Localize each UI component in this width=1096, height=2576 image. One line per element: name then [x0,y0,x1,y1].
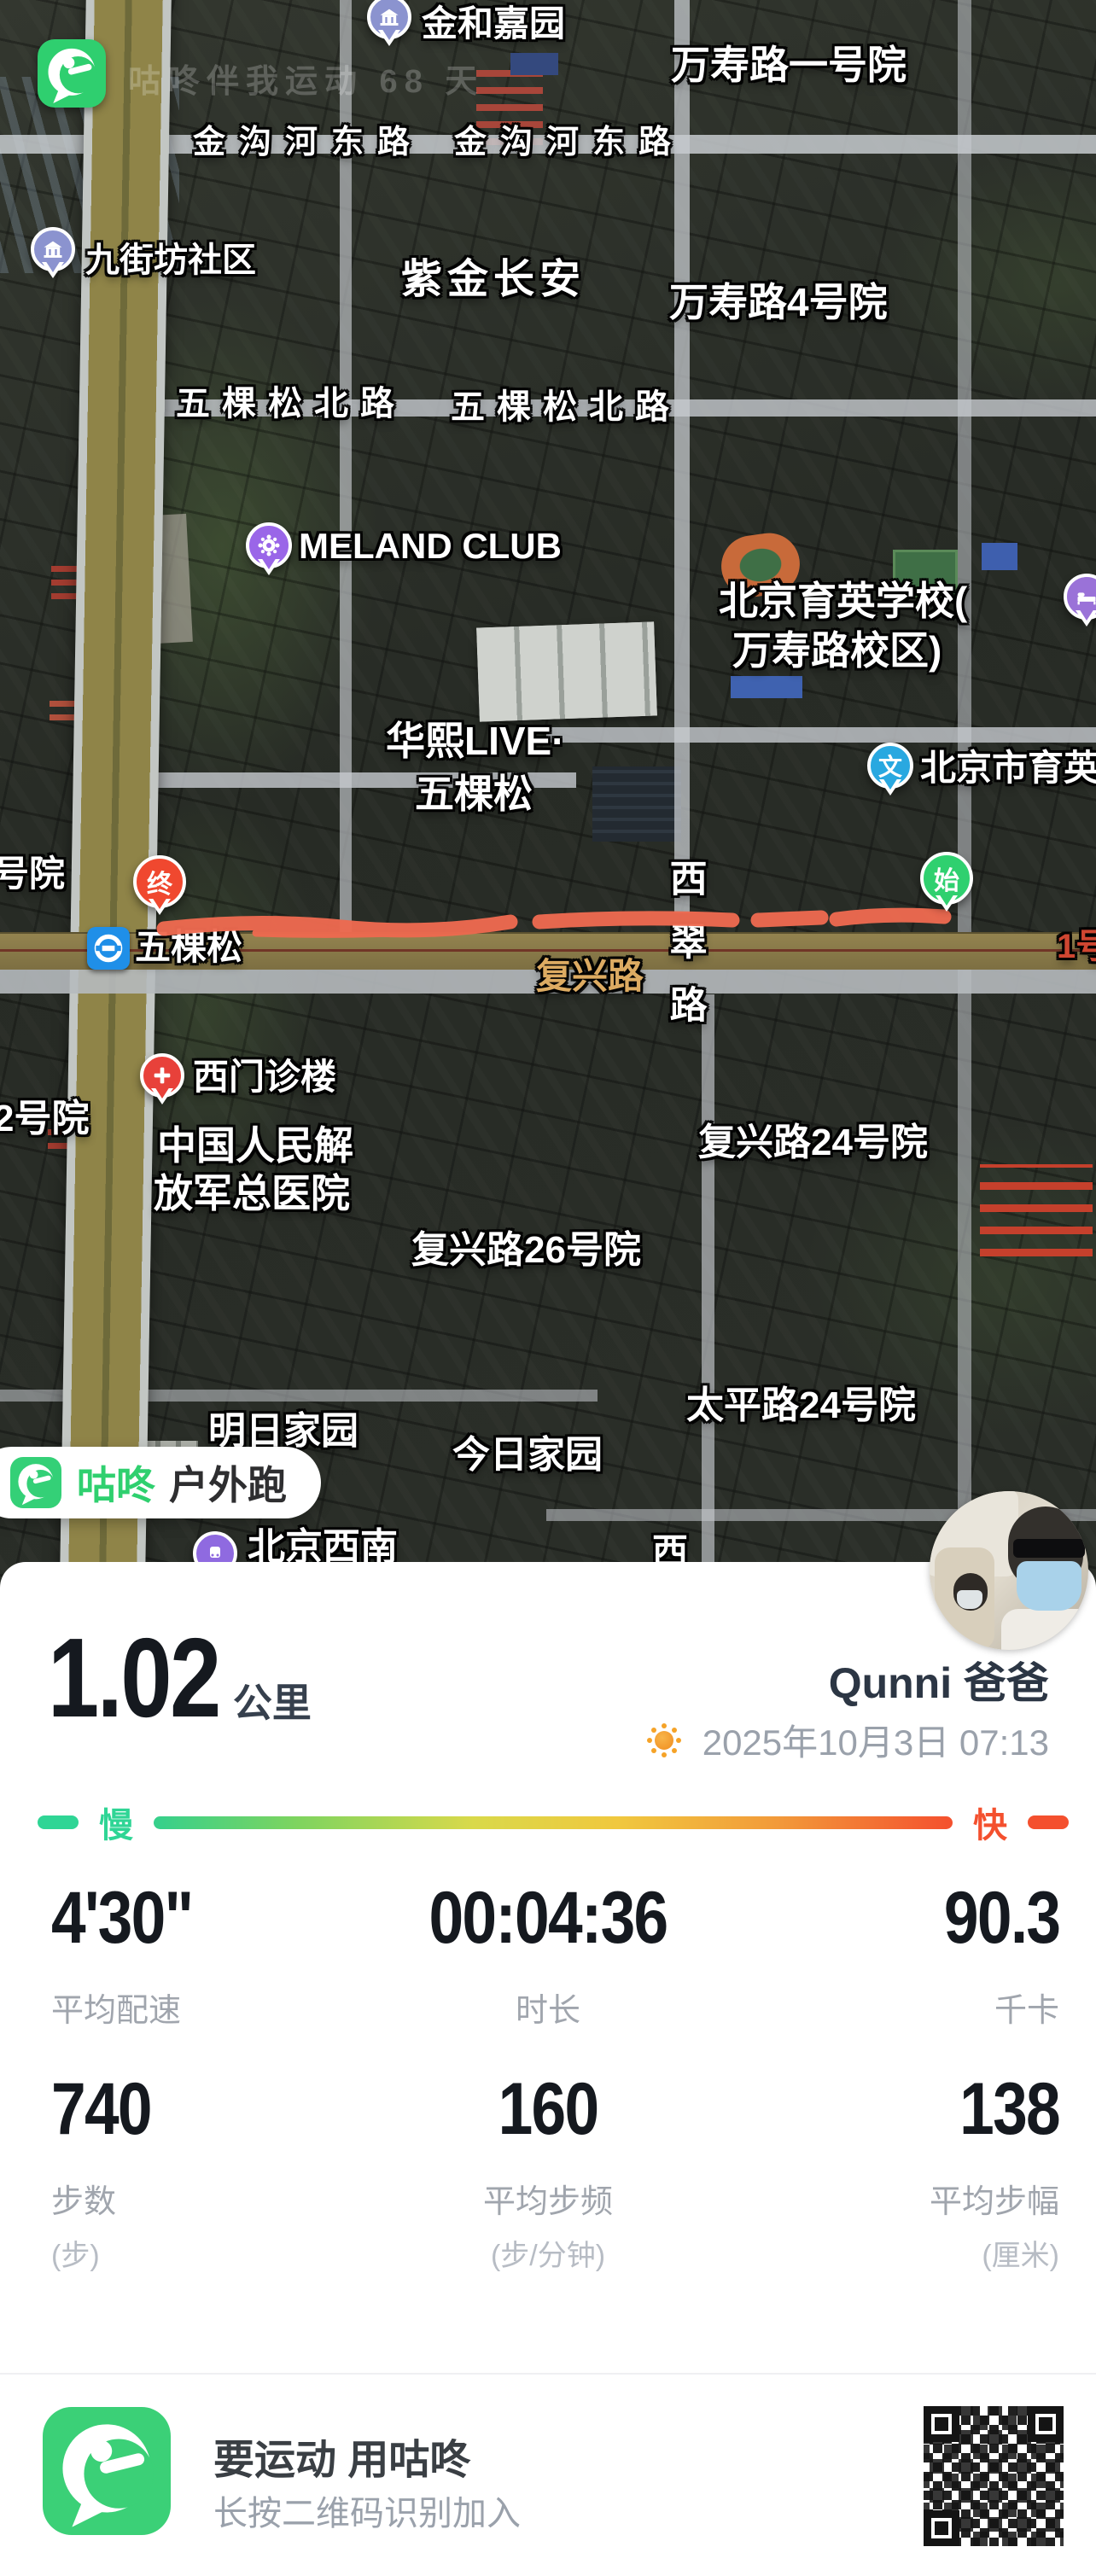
codoon-badge-logo [10,1457,61,1508]
avatar-photo-sunglasses [1013,1539,1085,1558]
stat-calories: 90.3 千卡 [924,1881,1059,2031]
codoon-logo [38,39,106,108]
badge-app-name: 咕咚 [77,1454,155,1511]
distance-block: 1.02 公里 [48,1622,312,1734]
badge-activity-type: 户外跑 [169,1454,287,1511]
codoon-footer-logo [43,2407,171,2535]
gear-icon [256,533,282,558]
footer-divider [0,2373,1096,2375]
school-pin-label: 文 [878,749,902,783]
building-icon [41,237,65,261]
stat-label: 千卡 [924,1984,1059,2031]
qr-finder-icon [924,2510,959,2546]
stat-value: 138 [949,2072,1059,2146]
satellite-map[interactable]: 咕咚伴我运动 68 天 金和嘉园 万寿路一号院 金沟河东路 金沟河东路 九街坊社… [0,0,1096,1622]
community-pin [31,227,75,271]
stat-sub-label: (厘米) [930,2232,1059,2274]
fast-pace-pill [1028,1815,1069,1829]
stat-label: 平均步幅 [930,2175,1059,2222]
slow-pace-pill [38,1815,79,1829]
pace-gradient-row: 慢 快 [38,1801,1069,1844]
meland-pin [246,522,292,568]
qr-pattern [924,2406,1064,2546]
subway-station-icon [87,927,130,970]
stat-value: 00:04:36 [82,1881,1013,1955]
fast-label: 快 [973,1798,1007,1847]
running-route-line [0,0,1096,1622]
bed-icon [1075,585,1096,609]
run-summary-card: 1.02 公里 Qunni 爸爸 2025年10月3日 07:13 慢 快 4'… [0,1562,1096,2576]
slow-label: 慢 [99,1798,133,1847]
distance-unit: 公里 [233,1672,312,1728]
avatar[interactable] [930,1491,1088,1650]
weather-sun-icon [644,1721,684,1760]
pace-gradient-bar [154,1816,953,1829]
footer-qr-hint: 长按二维码识别加入 [213,2486,521,2535]
codoon-bird-icon [10,1457,61,1508]
codoon-bird-icon [43,2407,171,2535]
route-start-pin: 始 [920,852,973,905]
share-card-screen: 咕咚伴我运动 68 天 金和嘉园 万寿路一号院 金沟河东路 金沟河东路 九街坊社… [0,0,1096,2576]
qr-code[interactable] [920,2403,1067,2550]
school-pin: 文 [867,743,913,789]
stat-value: 90.3 [944,1881,1059,1955]
distance-value: 1.02 [48,1622,219,1734]
avatar-photo-shoulder [1001,1609,1088,1650]
avatar-photo-face-mask [1017,1561,1081,1611]
codoon-bird-icon [38,39,106,108]
train-icon [205,1543,225,1564]
activity-type-badge[interactable]: 咕咚 户外跑 [0,1447,321,1518]
route-end-label: 终 [147,863,172,900]
date-row: 2025年10月3日 07:13 [644,1714,1049,1766]
activity-datetime: 2025年10月3日 07:13 [702,1714,1049,1766]
qr-finder-icon [924,2406,959,2442]
avatar-photo-child-mask [957,1590,982,1609]
qr-finder-icon [1028,2406,1064,2442]
hospital-pin [140,1053,184,1098]
footer-slogan: 要运动 用咕咚 [213,2426,470,2486]
beijing-subway-logo-icon [90,930,126,966]
route-end-pin: 终 [133,855,186,908]
user-name: Qunni 爸爸 [829,1649,1049,1711]
medical-cross-icon [150,1064,174,1087]
stat-value: 160 [82,2072,1013,2146]
building-icon [377,5,401,29]
stat-stride: 138 平均步幅 (厘米) [930,2072,1059,2274]
route-start-label: 始 [934,860,959,897]
